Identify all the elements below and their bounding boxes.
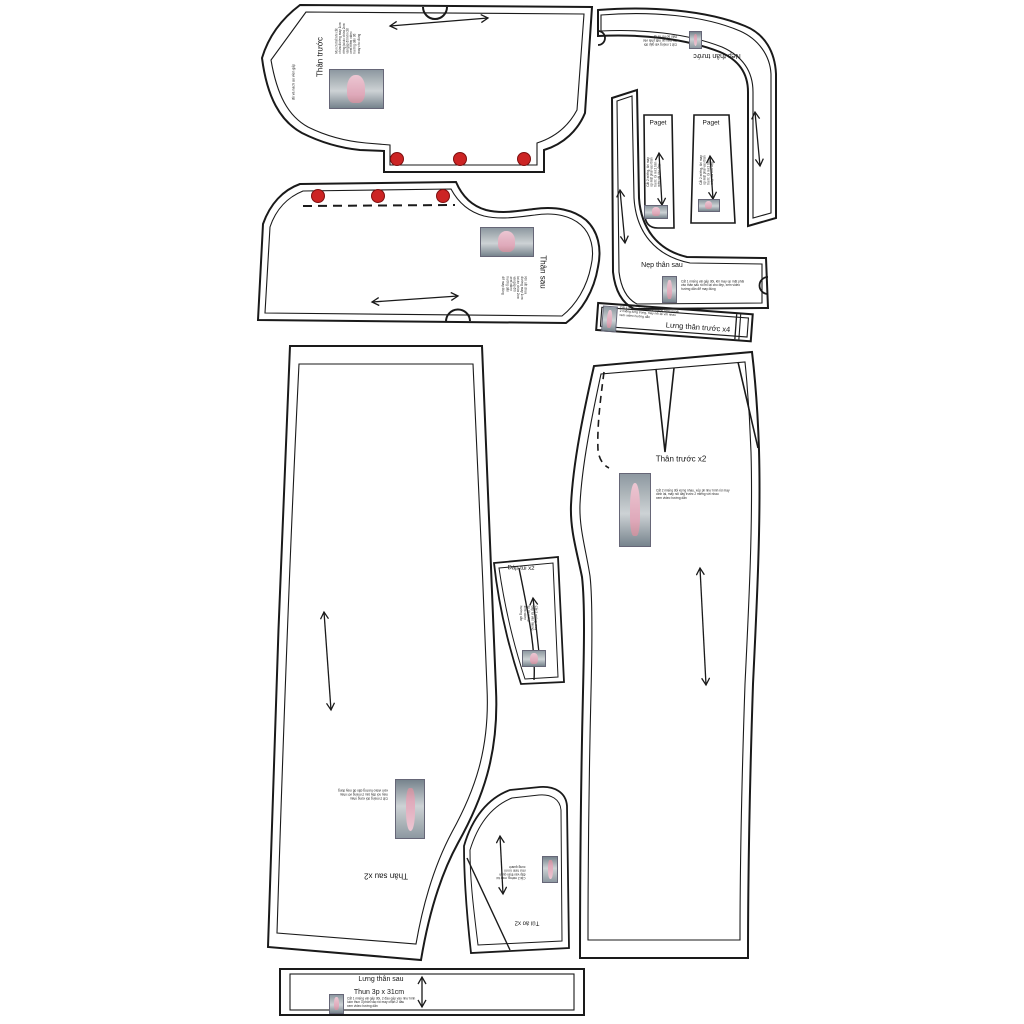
piece-label-front-neck-facing: Nẹp thân trước	[693, 51, 740, 59]
photo-thumbnail	[396, 780, 424, 838]
pants-back-outline	[268, 346, 496, 960]
piece-note-shirt-back: Khi cắt chừa đường may 1cm lai áo chừa 2…	[501, 276, 527, 299]
piece-side-note-shirt-front: đồ và nách áo viền gấp	[292, 64, 296, 100]
piece-label-pants-back: Thân sau x2	[364, 871, 408, 880]
piece-label-back-waistband: Lưng thân sau	[358, 976, 403, 984]
placket-fold-line	[303, 205, 455, 206]
end-notch	[598, 31, 605, 45]
piece-note-placket-right: Cắt 2 miếng, khi may úp mặt phải vào thâ…	[700, 155, 715, 185]
piece-label-back-neck-facing: Nẹp thân sau	[641, 262, 683, 270]
piece-note-pants-back: Cắt 2 miếng đối xứng nhau may nối đáy sa…	[338, 788, 388, 799]
fold-dashed-line	[598, 372, 609, 468]
piece-label-pocket-facing: Đáp túi x2	[507, 565, 534, 573]
piece-label-placket-left: Paget	[650, 119, 667, 126]
piece-label-shirt-back: Thân sau	[538, 255, 547, 288]
button-dot	[437, 190, 450, 203]
grainline-arrows	[324, 18, 760, 1007]
piece-label-pants-front: Thân trước x2	[656, 454, 707, 463]
piece-note-shirt-front: Mọi chi tiết khi cắt chừa đường may 1cm …	[335, 22, 361, 53]
photo-thumbnail	[690, 32, 701, 48]
shirt-back-outline	[258, 182, 600, 323]
button-dot	[372, 190, 385, 203]
photo-thumbnail	[620, 474, 650, 546]
piece-label-pocket: Túi áo x2	[515, 919, 540, 926]
piece-label-placket-right: Paget	[703, 119, 720, 126]
button-dots	[312, 153, 531, 203]
photo-thumbnail	[330, 995, 343, 1013]
pants-front-outline	[571, 352, 760, 958]
piece-sublabel-back-waistband: Thun 3p x 31cm	[354, 989, 404, 997]
button-dot	[518, 153, 531, 166]
piece-note-back-neck-facing: Cắt 1 miếng vải gấp đôi, khi may úp mặt …	[681, 280, 744, 291]
button-dot	[312, 190, 325, 203]
piece-note-pants-front: Cắt 2 miếng đối xứng nhau, xếp pli như h…	[656, 489, 730, 500]
shirt-front-outline	[262, 5, 592, 172]
sewing-pattern-sheet: Thân trước đồ và nách áo viền gấp Mọi ch…	[0, 0, 1024, 1024]
button-dot	[454, 153, 467, 166]
dart-lines	[656, 368, 674, 452]
piece-note-placket-left: Cắt 2 miếng, khi may úp mặt phải vào thâ…	[647, 157, 662, 187]
photo-thumbnail	[699, 200, 719, 211]
back-neck-facing-outline	[612, 90, 768, 309]
photo-thumbnail	[663, 277, 676, 302]
photo-thumbnail	[602, 307, 617, 332]
piece-note-back-waistband: Cắt 1 miếng vải gấp đôi, 2 đầu gấp vào n…	[347, 997, 415, 1008]
piece-label-shirt-front: Thân trước	[315, 37, 324, 77]
photo-thumbnail	[543, 857, 557, 882]
front-neck-facing-outline	[598, 9, 776, 226]
photo-thumbnail	[523, 651, 545, 666]
piece-note-pocket-facing: Cắt 2 miếng, may đáp túi vào miệng túi r…	[519, 606, 538, 631]
piece-note-front-neck-facing: Cắt 1 miếng vải gấp đôi khi may úp mặt p…	[643, 34, 677, 45]
photo-thumbnail	[330, 70, 383, 108]
photo-thumbnail	[481, 228, 533, 256]
neck-notch	[446, 310, 470, 322]
button-dot	[391, 153, 404, 166]
piece-note-pocket: Cắt 2 miếng, may túi đắp vào thân quần n…	[497, 865, 526, 880]
photo-thumbnail	[645, 206, 667, 218]
back-waistband-outline	[280, 969, 584, 1015]
